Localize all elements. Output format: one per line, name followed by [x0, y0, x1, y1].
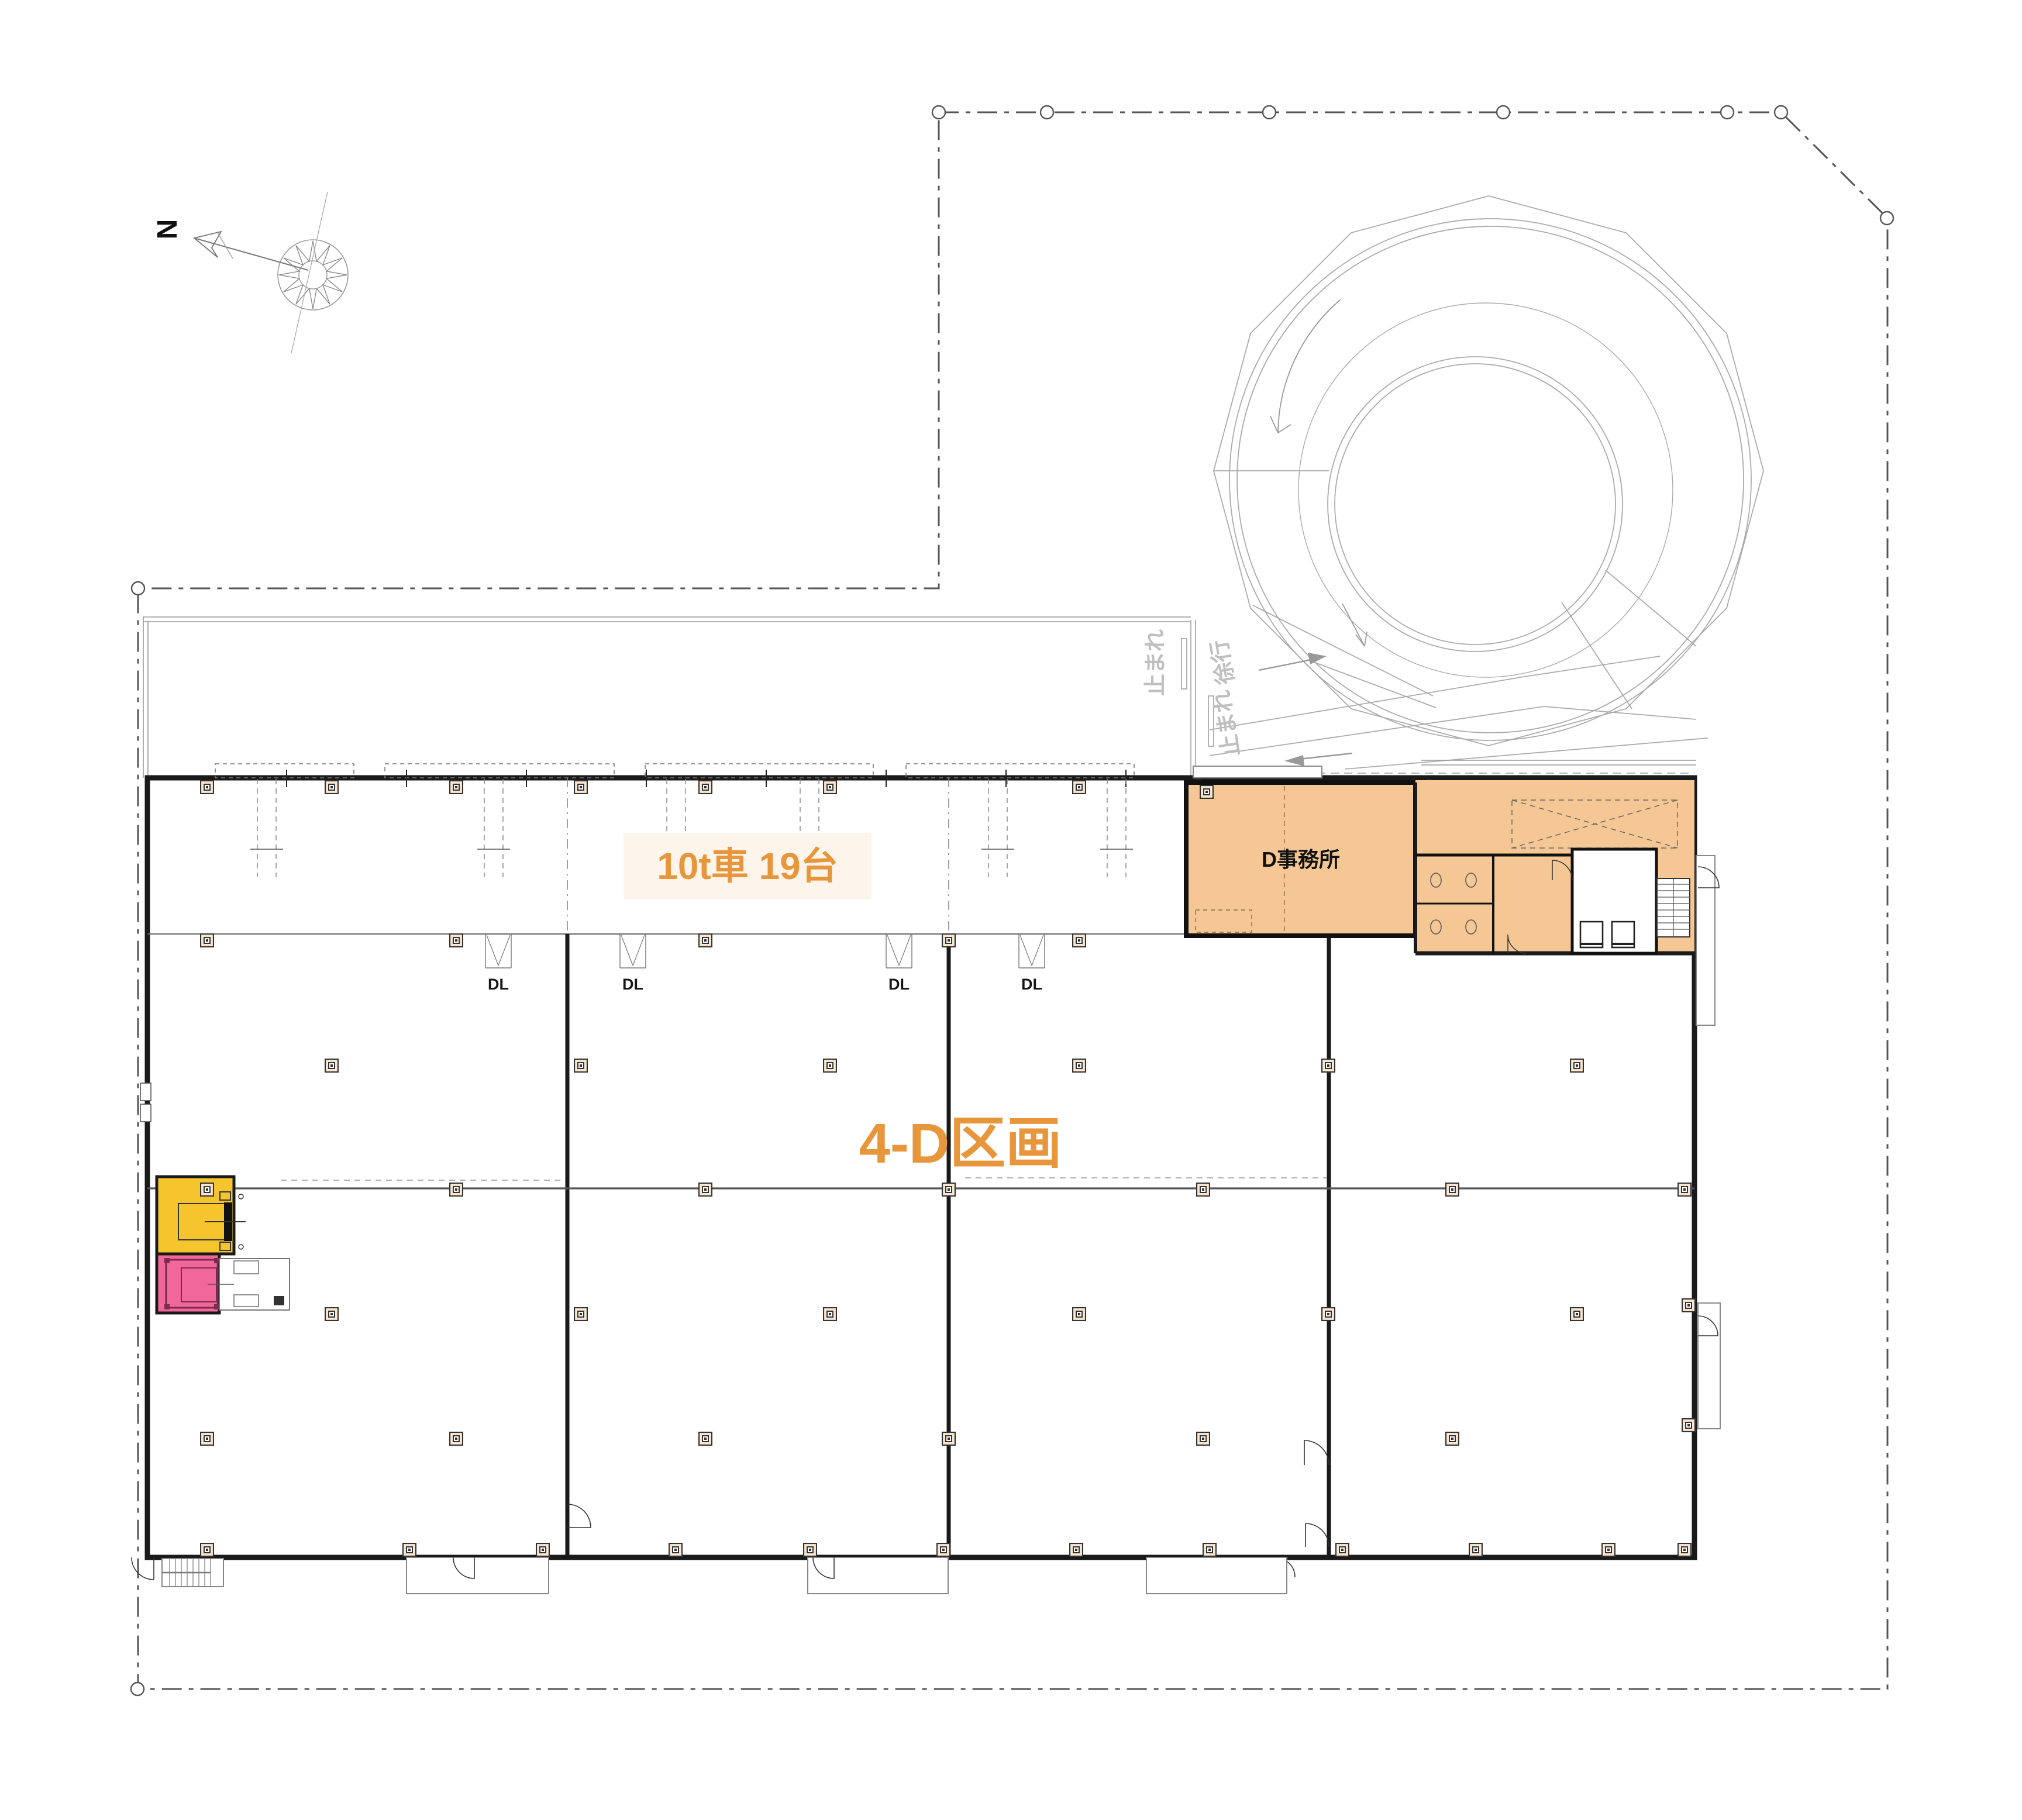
north-compass: N	[152, 192, 348, 353]
dock-leveler-label: DL	[888, 976, 910, 993]
north-label: N	[152, 219, 183, 240]
ramp-merge-line	[1253, 605, 1433, 696]
pink-corner	[164, 1258, 170, 1263]
dock-leveler-label: DL	[1021, 976, 1042, 993]
right-side-stoop	[1698, 1303, 1720, 1429]
dock-leveler-icon	[886, 935, 912, 968]
exterior-doors	[132, 867, 1719, 1580]
office-label: D事務所	[1262, 847, 1340, 871]
compass-outer-circle	[278, 240, 348, 310]
machine-room	[208, 1259, 290, 1310]
spiral-ramp	[1181, 196, 1763, 778]
dock-leveler-icon	[620, 935, 646, 968]
lane-divider	[1210, 706, 1696, 756]
right-side-walkway	[1696, 856, 1715, 1025]
pink-corner	[214, 1258, 219, 1263]
pink-corner	[164, 1304, 170, 1309]
hinge-dot	[239, 1245, 243, 1249]
dock-canopy	[407, 1557, 549, 1594]
truck-berth-label: 10t車 19台	[657, 845, 838, 887]
lane-lower-edge	[1345, 738, 1708, 769]
ramp-small-arrow	[1342, 604, 1365, 646]
dock-canopy	[1146, 1557, 1287, 1594]
dock-leveler-label: DL	[622, 976, 643, 993]
exterior-stairs-and-canopies	[132, 856, 1720, 1594]
core-stairs	[1657, 878, 1690, 937]
compass-axis-line	[291, 192, 328, 353]
truck-yard	[143, 617, 1191, 778]
ramp-slow-marking: 徐行	[1207, 638, 1239, 687]
floor-plan-drawing: N 止まれ 徐行 止まれ	[0, 0, 2022, 1820]
lane-down-arrow-head	[1284, 755, 1304, 766]
service-core	[1415, 780, 1694, 953]
exit-stair-box	[162, 1559, 223, 1587]
north-arrow-shaft	[194, 238, 308, 270]
stop-sign-board	[1181, 639, 1187, 689]
compass-star	[279, 241, 347, 309]
ramp-curve-arrow	[1278, 299, 1341, 433]
lifter-pink	[157, 1254, 219, 1313]
ramp-inner-edge-inner	[1335, 364, 1615, 644]
machine-detail-dark	[274, 1296, 284, 1305]
ramp-spoke	[1606, 570, 1696, 646]
zone-label: 4-D区画	[859, 1112, 1062, 1175]
hinge-dot	[239, 1194, 243, 1199]
dock-leveler-icon	[1019, 935, 1045, 968]
ramp-curve-arrow-head	[1270, 416, 1291, 433]
dock-leveler-label: DL	[488, 976, 509, 993]
pink-corner	[214, 1304, 219, 1309]
core-roof-lines	[1421, 760, 1696, 765]
office-d: D事務所	[1186, 783, 1415, 936]
lane-up-arrow	[1259, 659, 1317, 670]
dock-leveler-icon	[485, 935, 511, 968]
lane-up-arrow-head	[1308, 653, 1327, 664]
floor-plan-canvas: N 止まれ 徐行 止まれ	[0, 0, 2022, 1820]
dock-canopy	[808, 1557, 948, 1594]
ramp-mid-lane-line	[1298, 303, 1673, 677]
ramp-inner-edge	[1328, 357, 1623, 652]
ramp-stop-marking: 止まれ	[1143, 629, 1168, 696]
office-entry-canopy	[1193, 766, 1322, 778]
ramp-stop-marking: 止まれ	[1210, 688, 1244, 758]
